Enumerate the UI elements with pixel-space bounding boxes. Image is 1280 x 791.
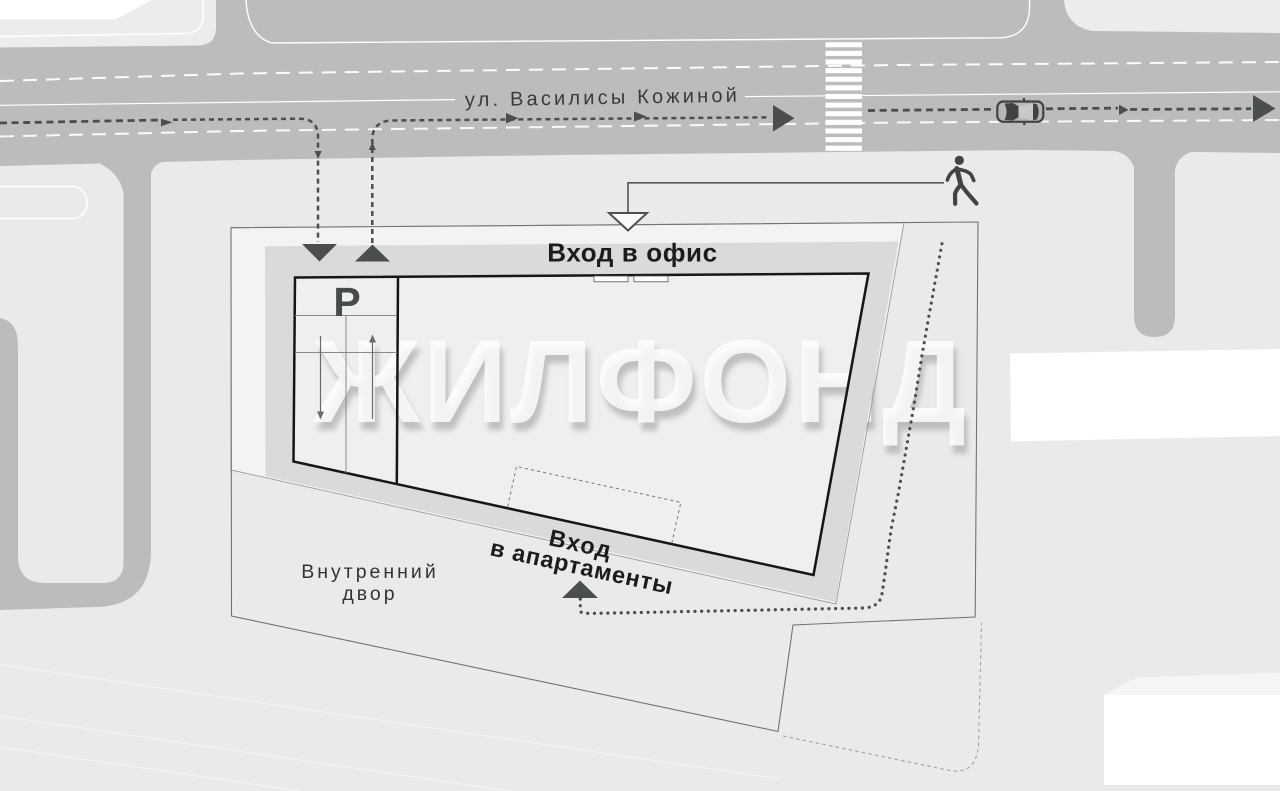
svg-text:Вход в офис: Вход в офис	[547, 238, 717, 268]
svg-text:Внутренний: Внутренний	[301, 561, 438, 583]
svg-text:двор: двор	[342, 583, 397, 605]
svg-text:Р: Р	[333, 279, 360, 325]
